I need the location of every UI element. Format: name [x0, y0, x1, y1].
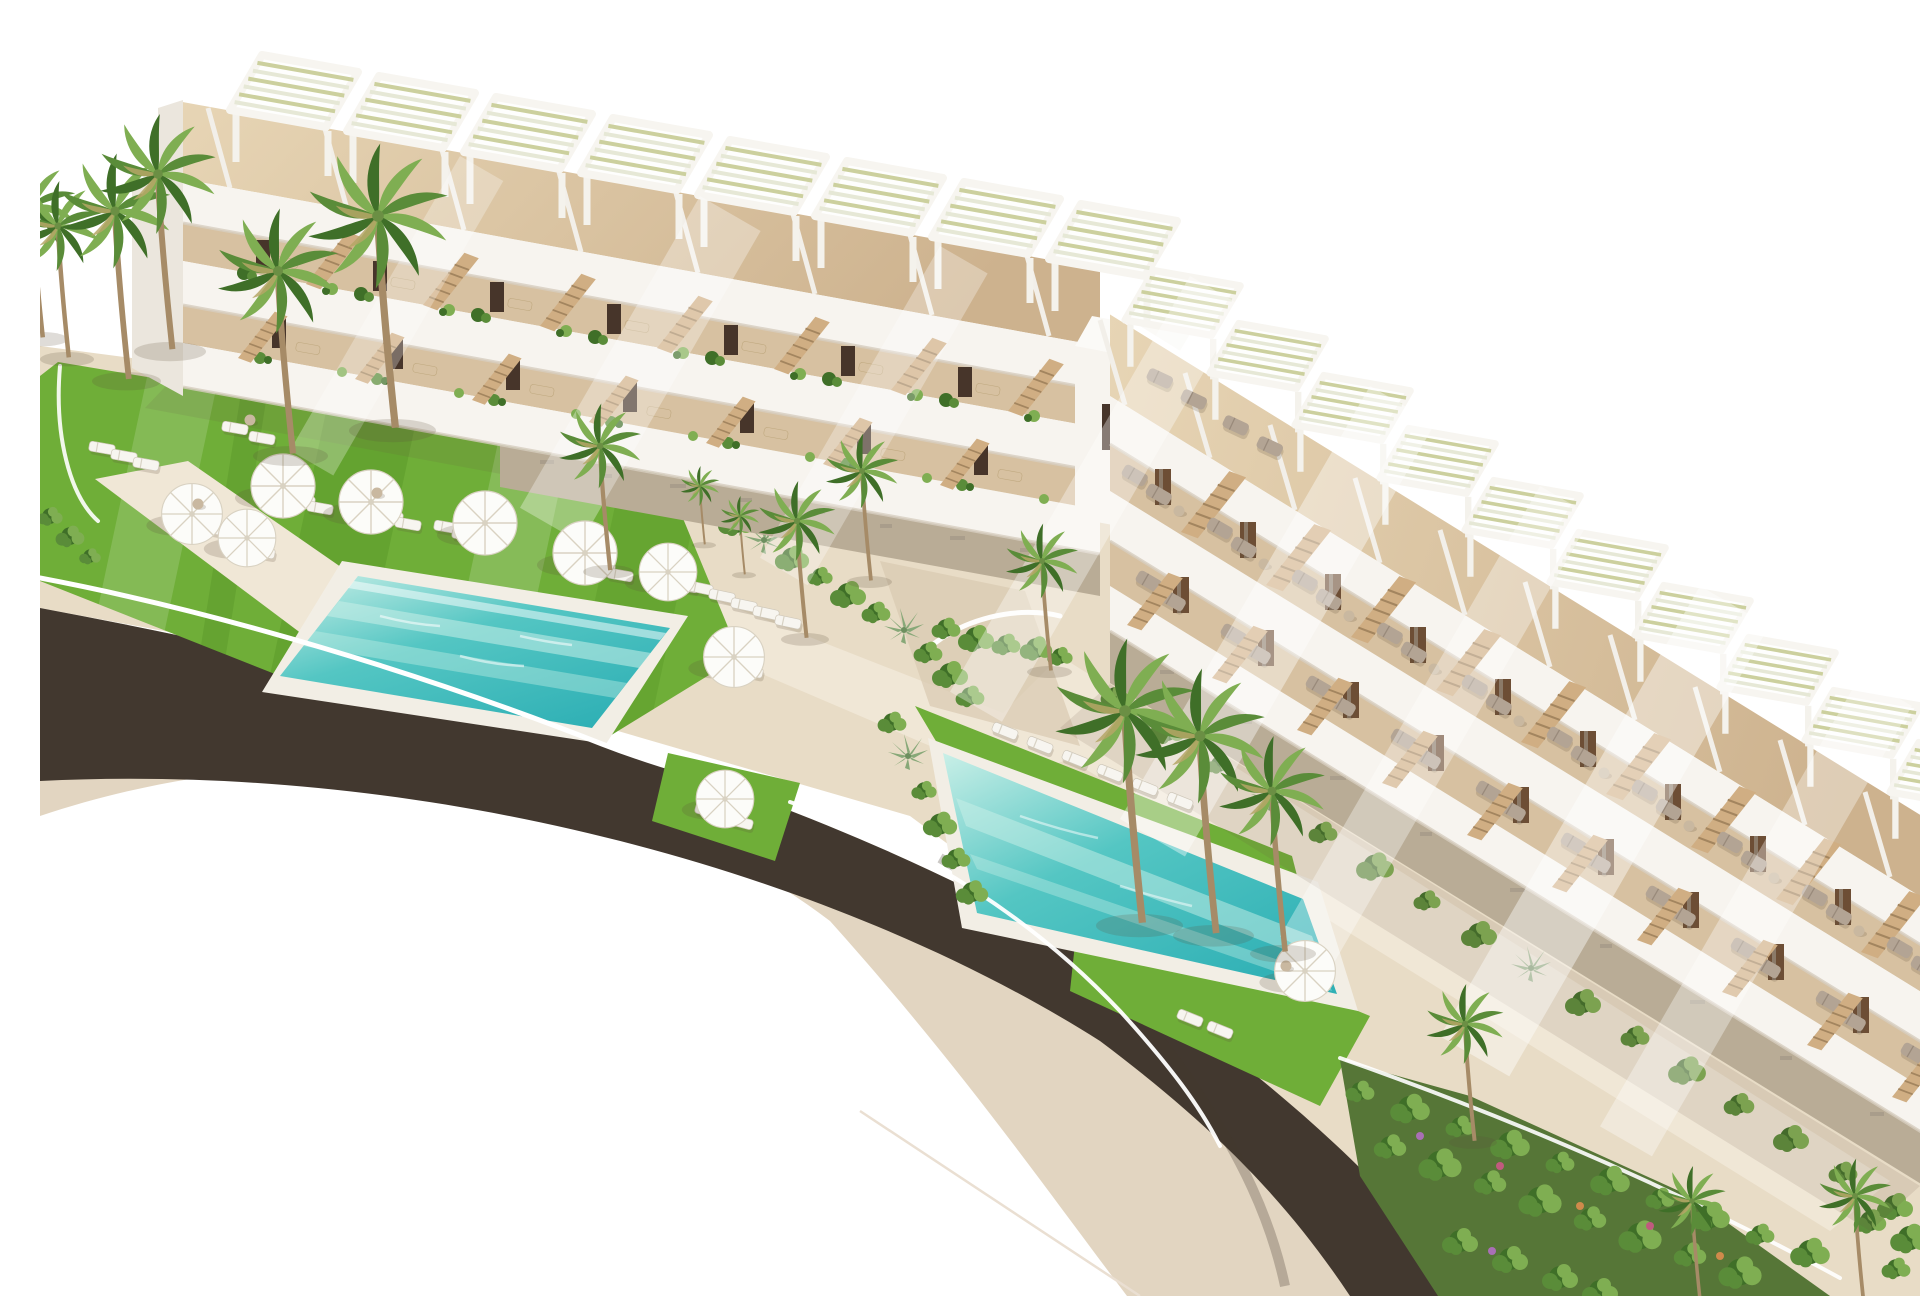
scene-svg: Aerial 3D architectural render of a whit…: [40, 16, 1920, 1296]
architectural-render: Two long white terraced apartment blocks…: [40, 16, 1920, 1296]
